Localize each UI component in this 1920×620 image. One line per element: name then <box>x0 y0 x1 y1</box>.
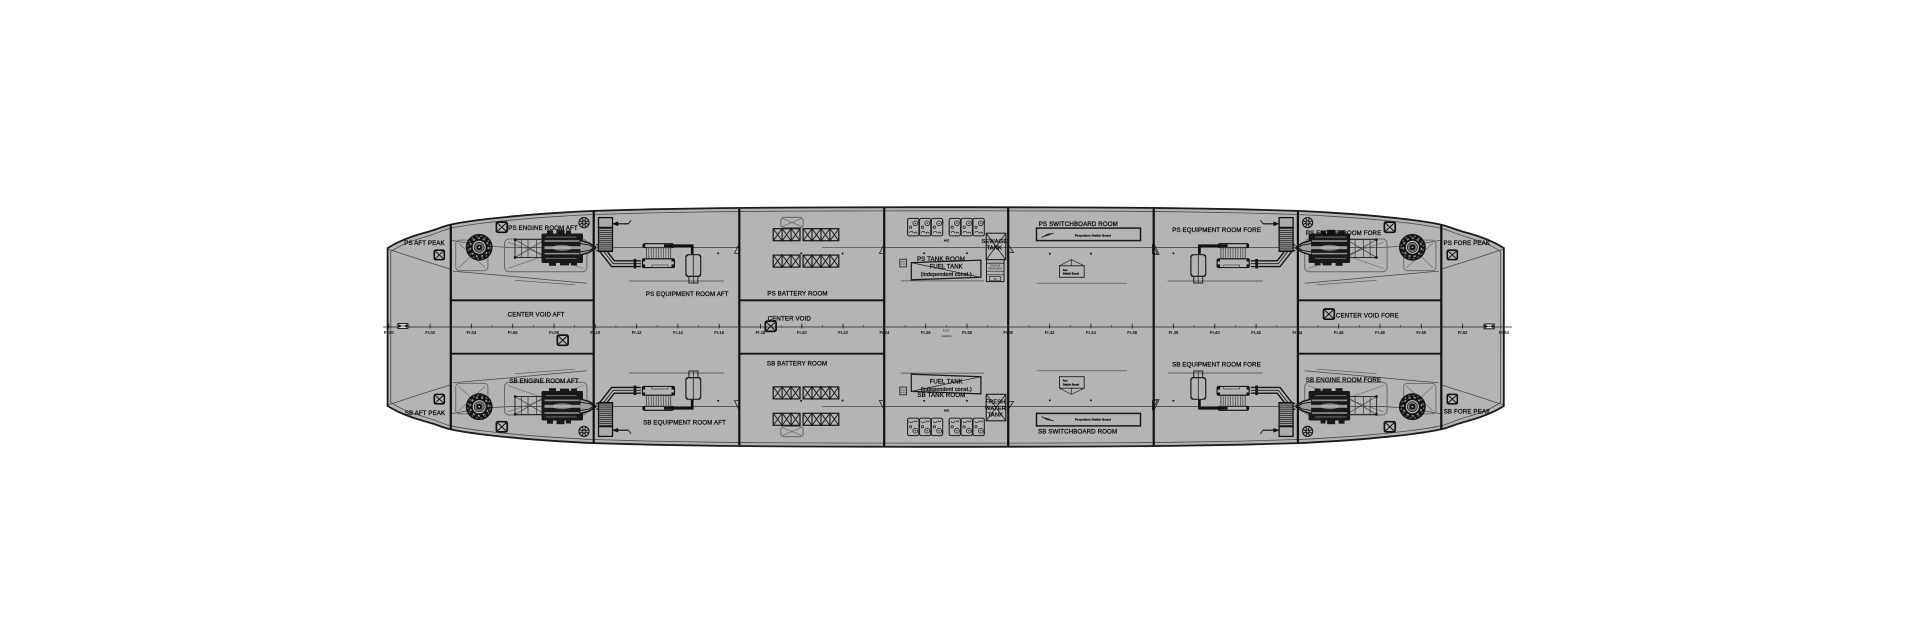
svg-text:Fr.38: Fr.38 <box>1169 330 1179 335</box>
svg-text:FRESH: FRESH <box>985 400 1005 406</box>
svg-text:WATER: WATER <box>985 406 1006 412</box>
svg-text:Fr.27: Fr.27 <box>943 329 950 333</box>
svg-text:A/C: A/C <box>944 409 950 413</box>
svg-text:Fr.44: Fr.44 <box>1293 330 1303 335</box>
svg-text:Fr.28: Fr.28 <box>962 330 972 335</box>
svg-text:Fr.24: Fr.24 <box>880 330 890 335</box>
svg-text:Switch Board: Switch Board <box>1063 382 1080 386</box>
svg-text:Fr.00: Fr.00 <box>384 330 394 335</box>
svg-text:(independent const.): (independent const.) <box>921 272 972 278</box>
svg-text:SB BATTERY ROOM: SB BATTERY ROOM <box>767 361 827 368</box>
svg-text:PS EQUIPMENT ROOM FORE: PS EQUIPMENT ROOM FORE <box>1172 227 1261 234</box>
svg-text:Fr.20: Fr.20 <box>797 330 807 335</box>
svg-text:Fr.02: Fr.02 <box>425 330 435 335</box>
svg-text:Fr.14: Fr.14 <box>673 330 683 335</box>
svg-text:Propulsion Switch Board: Propulsion Switch Board <box>1075 418 1111 422</box>
svg-text:Fr.54: Fr.54 <box>1499 330 1509 335</box>
svg-text:Fr.40: Fr.40 <box>1210 330 1220 335</box>
svg-text:CENTER VOID FORE: CENTER VOID FORE <box>1336 313 1399 320</box>
svg-text:PS TANK ROOM: PS TANK ROOM <box>917 256 965 263</box>
svg-text:PS BATTERY ROOM: PS BATTERY ROOM <box>767 291 827 298</box>
svg-text:SB EQUIPMENT ROOM AFT: SB EQUIPMENT ROOM AFT <box>643 420 726 427</box>
svg-text:SB ENGINE ROOM FORE: SB ENGINE ROOM FORE <box>1306 377 1381 384</box>
svg-text:TANK: TANK <box>988 413 1003 419</box>
svg-text:SB FORE PEAK: SB FORE PEAK <box>1444 409 1491 416</box>
svg-text:Fr.12: Fr.12 <box>632 330 642 335</box>
svg-text:CENTER VOID AFT: CENTER VOID AFT <box>508 312 565 319</box>
svg-text:TANK: TANK <box>987 246 1002 252</box>
svg-text:Fr.22: Fr.22 <box>838 330 848 335</box>
svg-text:Fr.16: Fr.16 <box>714 330 724 335</box>
svg-text:midship: midship <box>941 334 952 338</box>
svg-text:Fr.30: Fr.30 <box>1003 330 1013 335</box>
svg-text:Switch Board: Switch Board <box>1063 272 1080 276</box>
svg-text:PS FORE PEAK: PS FORE PEAK <box>1444 240 1491 247</box>
svg-text:Fr.48: Fr.48 <box>1375 330 1385 335</box>
svg-text:Fr.10: Fr.10 <box>590 330 600 335</box>
svg-text:Aux: Aux <box>1063 379 1068 383</box>
svg-text:CENTER VOID: CENTER VOID <box>768 315 812 322</box>
svg-text:FUEL TANK: FUEL TANK <box>930 264 963 270</box>
svg-text:PS SWITCHBOARD ROOM: PS SWITCHBOARD ROOM <box>1039 221 1118 228</box>
svg-text:TREATMENT: TREATMENT <box>988 268 1003 271</box>
svg-text:Fr.46: Fr.46 <box>1334 330 1344 335</box>
svg-text:Fr.18: Fr.18 <box>756 330 766 335</box>
svg-text:Fr.52: Fr.52 <box>1458 330 1468 335</box>
svg-text:Fr.34: Fr.34 <box>1086 330 1096 335</box>
svg-text:A/C: A/C <box>944 239 950 243</box>
svg-text:(independent const.): (independent const.) <box>921 387 972 393</box>
svg-text:Fr.36: Fr.36 <box>1127 330 1137 335</box>
svg-text:SB ENGINE ROOM AFT: SB ENGINE ROOM AFT <box>509 378 579 385</box>
svg-text:Fr.26: Fr.26 <box>921 330 931 335</box>
svg-text:SB EQUIPMENT ROOM FORE: SB EQUIPMENT ROOM FORE <box>1172 362 1261 369</box>
svg-text:Propulsion Switch Board: Propulsion Switch Board <box>1075 233 1111 237</box>
svg-text:PS EQUIPMENT ROOM AFT: PS EQUIPMENT ROOM AFT <box>646 291 729 298</box>
svg-text:FUEL TANK: FUEL TANK <box>930 380 963 386</box>
svg-text:Fr.32: Fr.32 <box>1045 330 1055 335</box>
svg-text:Aux: Aux <box>1063 268 1068 272</box>
svg-text:PS AFT PEAK: PS AFT PEAK <box>404 240 445 247</box>
svg-text:Fr.50: Fr.50 <box>1416 330 1426 335</box>
svg-text:PS ENGINE ROOM AFT: PS ENGINE ROOM AFT <box>508 225 578 232</box>
svg-text:IPI: IPI <box>994 278 997 281</box>
svg-text:SB AFT PEAK: SB AFT PEAK <box>405 410 446 417</box>
svg-text:SB SWITCHBOARD ROOM: SB SWITCHBOARD ROOM <box>1038 428 1117 435</box>
svg-text:Fr.42: Fr.42 <box>1251 330 1261 335</box>
svg-text:Fr.04: Fr.04 <box>467 330 477 335</box>
svg-text:PS ENGINE ROOM FORE: PS ENGINE ROOM FORE <box>1306 230 1381 237</box>
svg-text:SEWAGE: SEWAGE <box>981 239 1007 245</box>
svg-text:Fr.06: Fr.06 <box>508 330 518 335</box>
